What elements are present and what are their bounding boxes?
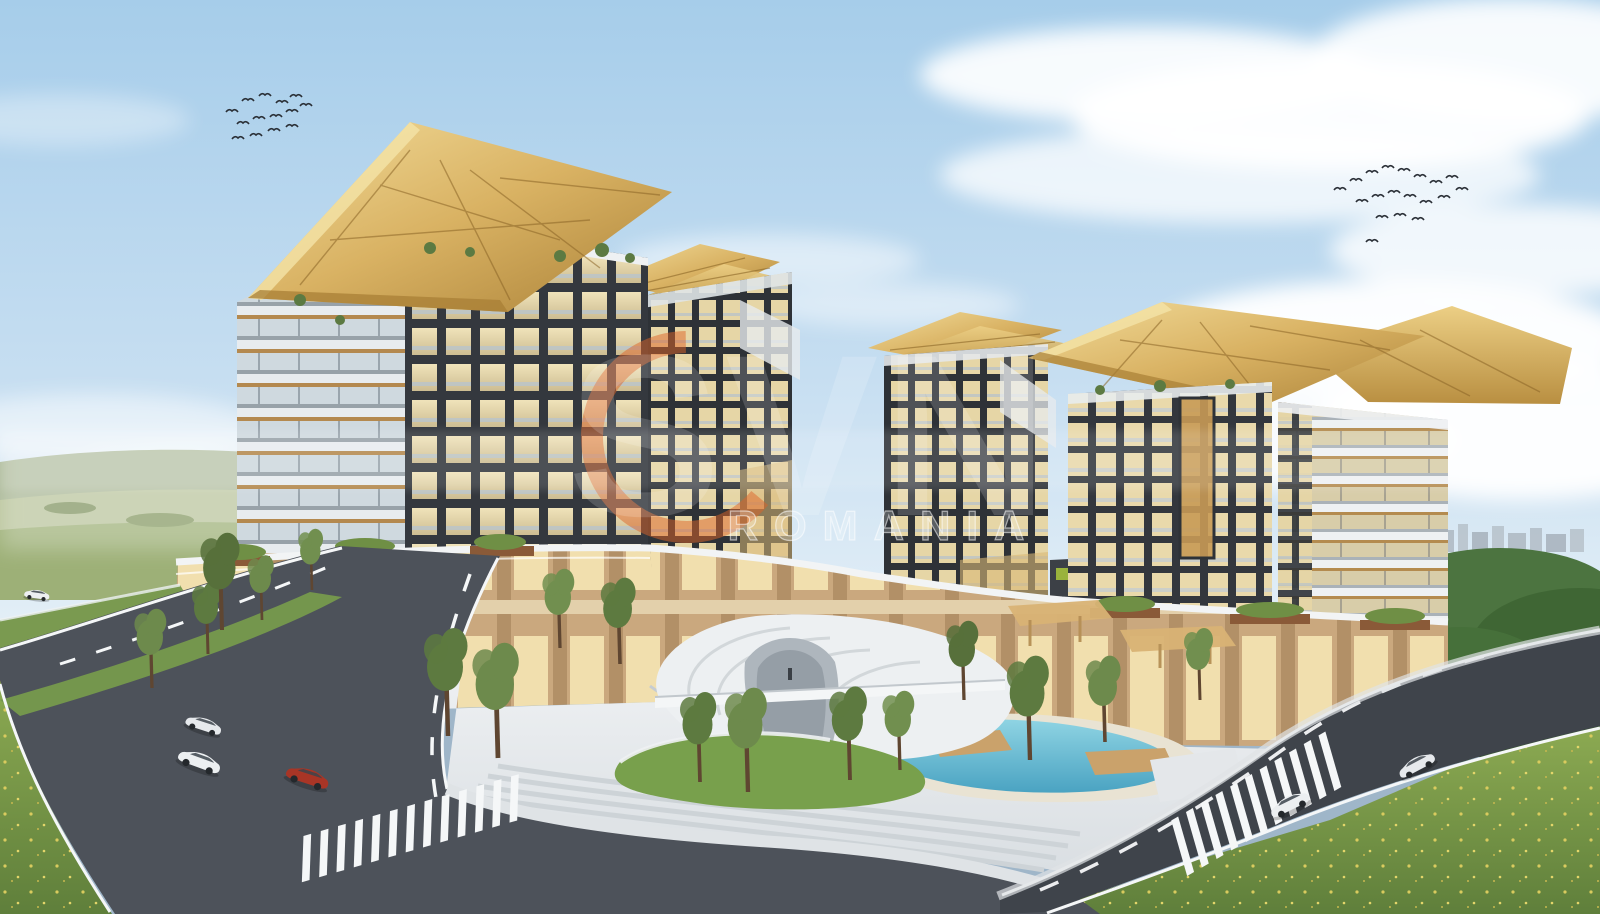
horizon-haze	[0, 430, 1600, 490]
architectural-rendering: SVN ROMANIA	[0, 0, 1600, 914]
watermark-region-text: ROMANIA	[728, 502, 1041, 549]
